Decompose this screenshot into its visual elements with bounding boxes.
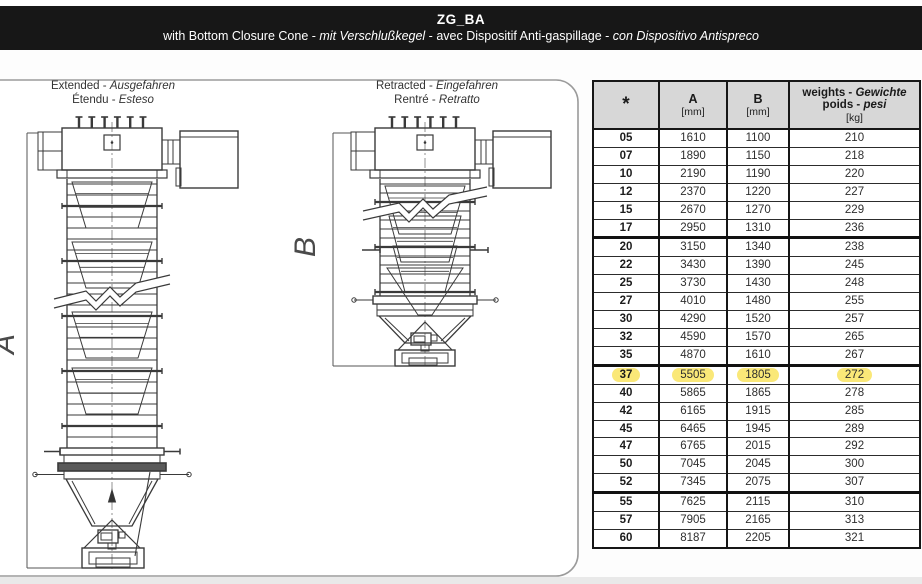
cell-a-mm: 7345 [659,474,727,493]
cell-b-mm: 1150 [727,147,789,165]
table-row: 1526701270229 [593,201,920,219]
cell-size: 12 [593,183,659,201]
cell-size: 52 [593,474,659,493]
cell-weight-kg: 255 [789,293,920,311]
cell-size: 20 [593,238,659,257]
label-extended-line1: Extended - Ausgefahren [13,80,213,94]
cell-size: 55 [593,493,659,512]
cell-b-mm: 2015 [727,438,789,456]
cell-a-mm: 2670 [659,201,727,219]
cell-size: 07 [593,147,659,165]
cell-size: 32 [593,328,659,346]
table-row: 4261651915285 [593,402,920,420]
cell-size: 60 [593,529,659,547]
cell-weight-kg: 313 [789,512,920,530]
table-row: 3755051805272 [593,365,920,384]
table-row: 5576252115310 [593,493,920,512]
cell-b-mm: 1865 [727,384,789,402]
cell-a-mm: 8187 [659,529,727,547]
cell-weight-kg: 292 [789,438,920,456]
table-row: 1729501310236 [593,219,920,238]
cell-size: 35 [593,346,659,365]
cell-weight-kg: 267 [789,346,920,365]
cell-b-mm: 1340 [727,238,789,257]
table-row: 2031501340238 [593,238,920,257]
cell-b-mm: 1430 [727,275,789,293]
doc-subtitle: with Bottom Closure Cone - mit Verschluß… [163,28,759,44]
cell-a-mm: 4010 [659,293,727,311]
cell-b-mm: 1390 [727,257,789,275]
table-row: 5779052165313 [593,512,920,530]
cell-a-mm: 5505 [659,365,727,384]
cell-weight-kg: 310 [789,493,920,512]
cell-a-mm: 7625 [659,493,727,512]
cell-b-mm: 1805 [727,365,789,384]
cell-size: 45 [593,420,659,438]
dimension-letter-retracted: B [289,237,322,257]
table-row: 2537301430248 [593,275,920,293]
cell-a-mm: 5865 [659,384,727,402]
cell-a-mm: 1890 [659,147,727,165]
cell-weight-kg: 220 [789,165,920,183]
spec-table: * A [mm] B [mm] weights - Gewichte poids… [592,80,921,549]
doc-title: ZG_BA [437,12,485,27]
cell-b-mm: 1610 [727,346,789,365]
cell-size: 42 [593,402,659,420]
table-row: 2234301390245 [593,257,920,275]
cell-a-mm: 4290 [659,311,727,329]
cell-weight-kg: 307 [789,474,920,493]
cell-weight-kg: 285 [789,402,920,420]
cell-weight-kg: 248 [789,275,920,293]
cell-size: 15 [593,201,659,219]
cell-b-mm: 1270 [727,201,789,219]
cell-size: 22 [593,257,659,275]
col-header-star: * [593,81,659,129]
cell-a-mm: 7905 [659,512,727,530]
cell-b-mm: 1915 [727,402,789,420]
cell-b-mm: 1220 [727,183,789,201]
table-row: 2740101480255 [593,293,920,311]
cell-a-mm: 3730 [659,275,727,293]
cell-a-mm: 2950 [659,219,727,238]
table-row: 5273452075307 [593,474,920,493]
label-extended-line2: Étendu - Esteso [13,94,213,108]
cell-size: 10 [593,165,659,183]
cell-b-mm: 1190 [727,165,789,183]
table-row: 3548701610267 [593,346,920,365]
cell-weight-kg: 245 [789,257,920,275]
cell-b-mm: 2045 [727,456,789,474]
col-header-b: B [mm] [727,81,789,129]
dimension-letter-extended: A [0,334,21,356]
table-row: 1223701220227 [593,183,920,201]
cell-a-mm: 3150 [659,238,727,257]
table-header-row: * A [mm] B [mm] weights - Gewichte poids… [593,81,920,129]
cell-weight-kg: 265 [789,328,920,346]
cell-b-mm: 1570 [727,328,789,346]
label-extended: Extended - Ausgefahren Étendu - Esteso [13,80,213,107]
table-body: 0516101100210071890115021810219011902201… [593,129,920,548]
cell-a-mm: 1610 [659,129,727,147]
table-row: 0516101100210 [593,129,920,147]
cell-b-mm: 1945 [727,420,789,438]
cell-a-mm: 4590 [659,328,727,346]
cell-weight-kg: 272 [789,365,920,384]
title-bar: ZG_BA with Bottom Closure Cone - mit Ver… [0,6,922,50]
label-retracted-line2: Rentré - Retratto [337,94,537,108]
cell-b-mm: 1520 [727,311,789,329]
drawing-panel-border [0,80,578,576]
cell-a-mm: 2370 [659,183,727,201]
cell-a-mm: 2190 [659,165,727,183]
cell-weight-kg: 236 [789,219,920,238]
table-row: 3245901570265 [593,328,920,346]
col-header-a: A [mm] [659,81,727,129]
spec-table-wrapper: * A [mm] B [mm] weights - Gewichte poids… [592,80,921,549]
table-row: 6081872205321 [593,529,920,547]
cell-weight-kg: 238 [789,238,920,257]
cell-size: 17 [593,219,659,238]
cell-size: 25 [593,275,659,293]
cell-weight-kg: 210 [789,129,920,147]
table-row: 4767652015292 [593,438,920,456]
cell-weight-kg: 278 [789,384,920,402]
cell-a-mm: 6465 [659,420,727,438]
cell-b-mm: 2205 [727,529,789,547]
table-row: 4564651945289 [593,420,920,438]
cell-weight-kg: 321 [789,529,920,547]
cell-a-mm: 6165 [659,402,727,420]
cell-b-mm: 2165 [727,512,789,530]
cell-a-mm: 6765 [659,438,727,456]
cell-weight-kg: 227 [789,183,920,201]
cell-size: 30 [593,311,659,329]
label-retracted-line1: Retracted - Eingefahren [337,80,537,94]
cell-b-mm: 1310 [727,219,789,238]
cell-size: 50 [593,456,659,474]
cell-weight-kg: 229 [789,201,920,219]
cell-b-mm: 1480 [727,293,789,311]
cell-a-mm: 7045 [659,456,727,474]
cell-size: 57 [593,512,659,530]
table-row: 1021901190220 [593,165,920,183]
cell-weight-kg: 300 [789,456,920,474]
cell-weight-kg: 218 [789,147,920,165]
cell-size: 27 [593,293,659,311]
cell-a-mm: 4870 [659,346,727,365]
cell-a-mm: 3430 [659,257,727,275]
cell-size: 37 [593,365,659,384]
asterisk-symbol: * [594,85,658,125]
cell-weight-kg: 289 [789,420,920,438]
table-row: 0718901150218 [593,147,920,165]
table-row: 3042901520257 [593,311,920,329]
table-row: 5070452045300 [593,456,920,474]
cell-b-mm: 2075 [727,474,789,493]
cell-weight-kg: 257 [789,311,920,329]
cell-size: 05 [593,129,659,147]
table-row: 4058651865278 [593,384,920,402]
cell-b-mm: 2115 [727,493,789,512]
cell-b-mm: 1100 [727,129,789,147]
col-header-weights: weights - Gewichte poids - pesi [kg] [789,81,920,129]
page-bottom-strip [0,577,922,584]
cell-size: 40 [593,384,659,402]
cell-size: 47 [593,438,659,456]
label-retracted: Retracted - Eingefahren Rentré - Retratt… [337,80,537,107]
